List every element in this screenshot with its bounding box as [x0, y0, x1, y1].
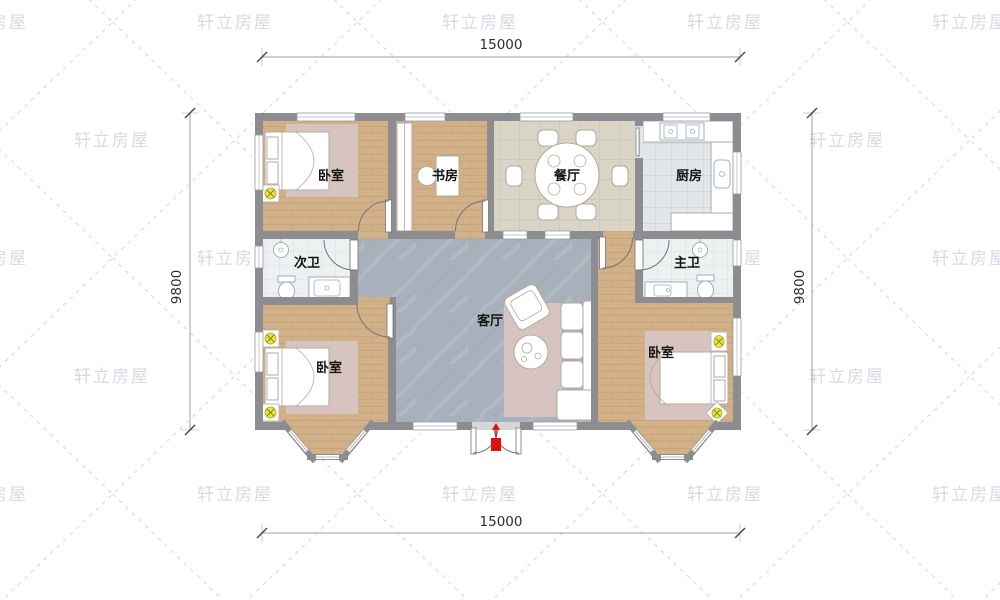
- bedroom-bottom-left-furniture: [262, 330, 358, 421]
- living-furniture: [502, 282, 593, 420]
- door-kitchen: [635, 126, 643, 158]
- ceiling-light: [262, 185, 279, 202]
- window: [413, 422, 457, 430]
- window: [663, 113, 710, 121]
- watermark-text: 轩立房屋: [809, 367, 885, 387]
- toilet: [278, 276, 295, 300]
- label-bedroom-bottom-right: 卧室: [648, 345, 674, 361]
- floor-plan-canvas: 轩立房屋轩立房屋轩立房屋轩立房屋轩立房屋轩立房屋轩立房屋轩立房屋轩立房屋轩立房屋…: [0, 0, 1000, 600]
- window: [255, 246, 263, 268]
- label-dining: 餐厅: [553, 168, 580, 184]
- wall-bath-master-bottom: [635, 297, 733, 303]
- dimension-bottom-value: 15000: [480, 514, 523, 530]
- watermark-text: 轩立房屋: [0, 485, 28, 505]
- window: [733, 318, 741, 376]
- toilet: [697, 275, 714, 299]
- watermark-text: 轩立房屋: [932, 249, 1000, 269]
- watermark-text: 轩立房屋: [197, 13, 273, 33]
- watermark-text: 轩立房屋: [0, 13, 28, 33]
- window: [533, 422, 577, 430]
- coffee-table: [514, 335, 548, 369]
- watermark-text: 轩立房屋: [809, 131, 885, 151]
- window: [733, 240, 741, 266]
- watermark-text: 轩立房屋: [687, 13, 763, 33]
- watermark-text: 轩立房屋: [932, 13, 1000, 33]
- bedroom-bottom-right-furniture: [645, 331, 728, 424]
- watermark-text: 轩立房屋: [687, 485, 763, 505]
- watermark-text: 轩立房屋: [442, 13, 518, 33]
- wall-middle-horizontal: [263, 231, 733, 239]
- vanity: [645, 282, 687, 298]
- watermark-text: 轩立房屋: [74, 131, 150, 151]
- label-bath-master: 主卫: [674, 255, 700, 271]
- kitchen-sink: [714, 160, 730, 188]
- floor-plan-page: 轩立房屋轩立房屋轩立房屋轩立房屋轩立房屋轩立房屋轩立房屋轩立房屋轩立房屋轩立房屋…: [0, 0, 1000, 600]
- label-living: 客厅: [477, 313, 503, 329]
- ceiling-light: [262, 404, 279, 421]
- dimension-right-value: 9800: [792, 270, 808, 304]
- label-bedroom-bottom-left: 卧室: [316, 360, 342, 376]
- window: [297, 113, 355, 121]
- window: [255, 135, 263, 190]
- dimension-left-value: 9800: [169, 270, 185, 304]
- shower-tray: [309, 277, 350, 299]
- label-bedroom-top-left: 卧室: [318, 168, 344, 184]
- ceiling-light: [262, 330, 279, 347]
- counter-bottom: [671, 213, 733, 231]
- label-bath-secondary: 次卫: [294, 255, 320, 271]
- watermark-text: 轩立房屋: [0, 249, 28, 269]
- bedroom-top-left-furniture: [262, 124, 358, 202]
- stove: [660, 123, 704, 140]
- label-study: 书房: [432, 168, 458, 184]
- dimension-top-value: 15000: [480, 37, 523, 53]
- window: [255, 332, 263, 372]
- watermark-text: 轩立房屋: [197, 485, 273, 505]
- watermark-text: 轩立房屋: [442, 485, 518, 505]
- watermark-text: 轩立房屋: [932, 485, 1000, 505]
- ceiling-light: [711, 332, 727, 351]
- window: [733, 152, 741, 194]
- bed: [265, 348, 329, 406]
- window: [520, 113, 573, 121]
- interior-window: [503, 231, 527, 239]
- wall-living-bedroom-right: [591, 237, 598, 422]
- window: [405, 113, 445, 121]
- interior-window: [545, 231, 570, 239]
- label-kitchen: 厨房: [676, 168, 702, 184]
- watermark-text: 轩立房屋: [74, 367, 150, 387]
